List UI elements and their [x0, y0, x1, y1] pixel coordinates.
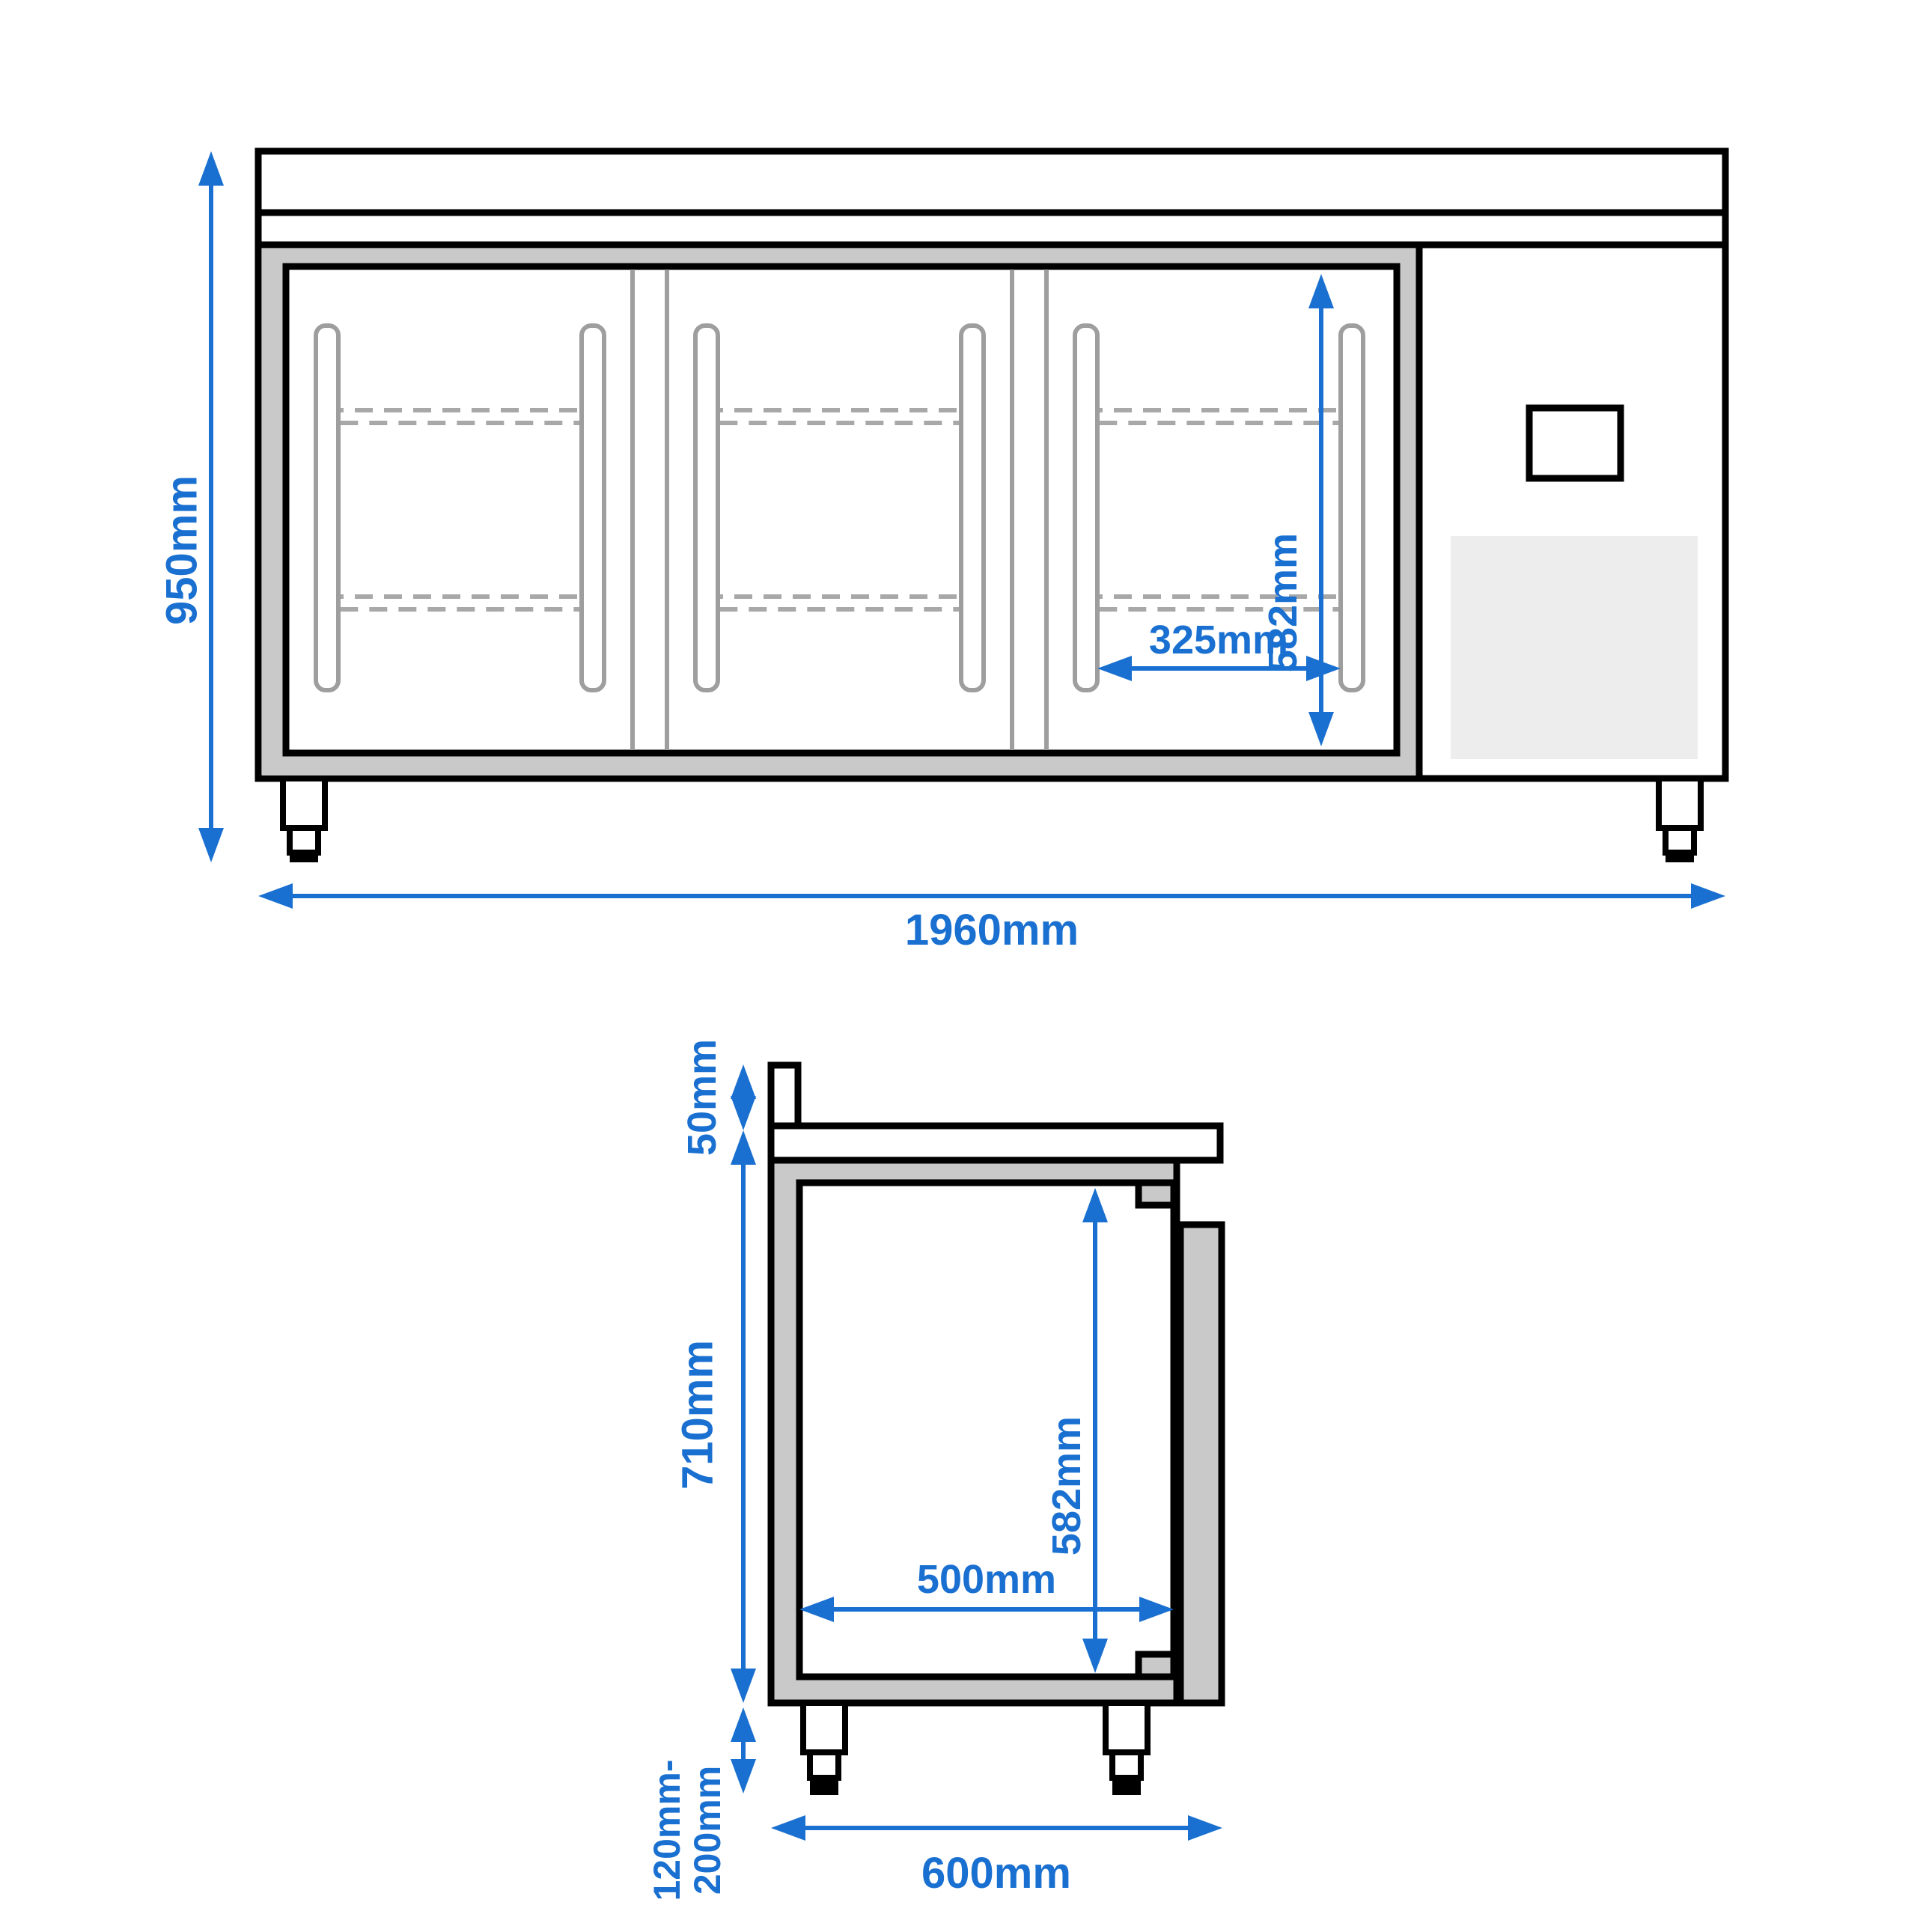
- arrowhead-up-icon: [731, 1130, 756, 1165]
- foot-upper: [1106, 1703, 1148, 1752]
- arrowhead-down-icon: [731, 1096, 756, 1130]
- dim-front-opening-width-label: 325mm: [1149, 618, 1288, 662]
- arrowhead-up-icon: [198, 151, 224, 186]
- door-handle: [316, 326, 338, 690]
- front-foot-right: [1659, 778, 1701, 862]
- side-interior: [799, 1183, 1174, 1677]
- front-door-opening: [286, 266, 1397, 753]
- foot-cap: [290, 853, 318, 862]
- side-notch-bottom: [1139, 1654, 1174, 1677]
- dim-overall-height-label: 950mm: [158, 475, 207, 625]
- foot-lower: [1666, 828, 1694, 853]
- dim-overall-height: 950mm: [158, 151, 225, 862]
- foot-lower: [810, 1752, 838, 1778]
- ventilation-grille: [1451, 536, 1698, 759]
- door-handle: [1075, 326, 1097, 690]
- side-notch-top: [1139, 1183, 1174, 1205]
- door-handle: [695, 326, 718, 690]
- dim-feet-min-label: 120mm-: [646, 1760, 688, 1901]
- front-worktop-edge-band: [258, 213, 1725, 245]
- door-handle: [961, 326, 984, 690]
- side-view: 50mm 710mm 120mm- 200mm 600mm: [646, 1039, 1222, 1901]
- arrowhead-up-icon: [731, 1064, 756, 1099]
- arrowhead-down-icon: [731, 1669, 756, 1703]
- arrowhead-left-icon: [258, 883, 293, 909]
- arrowhead-down-icon: [198, 828, 224, 862]
- foot-lower: [290, 828, 318, 853]
- dim-interior-depth-label: 500mm: [917, 1557, 1056, 1602]
- door-handle: [582, 326, 604, 690]
- dim-overall-width: 1960mm: [258, 883, 1725, 954]
- dim-feet-height-label: 120mm- 200mm: [646, 1760, 728, 1901]
- control-display: [1529, 408, 1621, 478]
- dimension-drawing: 950mm 1960mm 582mm 325mm: [0, 0, 1932, 1932]
- dim-overall-width-label: 1960mm: [905, 906, 1079, 954]
- side-foot-front: [803, 1703, 845, 1795]
- side-door-slab: [1180, 1225, 1222, 1703]
- dim-interior-height-label: 582mm: [1044, 1416, 1089, 1555]
- foot-cap: [810, 1778, 838, 1795]
- dim-body-height-label: 710mm: [674, 1340, 722, 1490]
- arrowhead-right-icon: [1188, 1815, 1222, 1841]
- side-worktop: [771, 1126, 1220, 1160]
- front-worktop-top-band: [258, 151, 1725, 213]
- dim-feet-max-label: 200mm: [686, 1766, 728, 1895]
- dim-overall-depth-label: 600mm: [921, 1849, 1071, 1898]
- dim-feet-height: 120mm- 200mm: [646, 1707, 756, 1901]
- side-foot-back: [1106, 1703, 1148, 1795]
- arrowhead-down-icon: [731, 1759, 756, 1794]
- dim-upstand-label: 50mm: [680, 1039, 725, 1156]
- foot-lower: [1112, 1752, 1141, 1778]
- side-backsplash: [771, 1065, 798, 1129]
- foot-upper: [283, 778, 325, 828]
- foot-upper: [1659, 778, 1701, 828]
- arrowhead-left-icon: [771, 1815, 805, 1841]
- door-handle: [1341, 326, 1363, 690]
- dim-overall-depth: 600mm: [771, 1815, 1222, 1898]
- foot-upper: [803, 1703, 845, 1752]
- foot-cap: [1112, 1778, 1141, 1795]
- arrowhead-right-icon: [1691, 883, 1725, 909]
- foot-cap: [1666, 853, 1694, 862]
- arrowhead-up-icon: [731, 1707, 756, 1742]
- dim-body-height: 710mm: [674, 1130, 757, 1703]
- front-view: 950mm 1960mm 582mm 325mm: [158, 151, 1726, 954]
- front-foot-left: [283, 778, 325, 862]
